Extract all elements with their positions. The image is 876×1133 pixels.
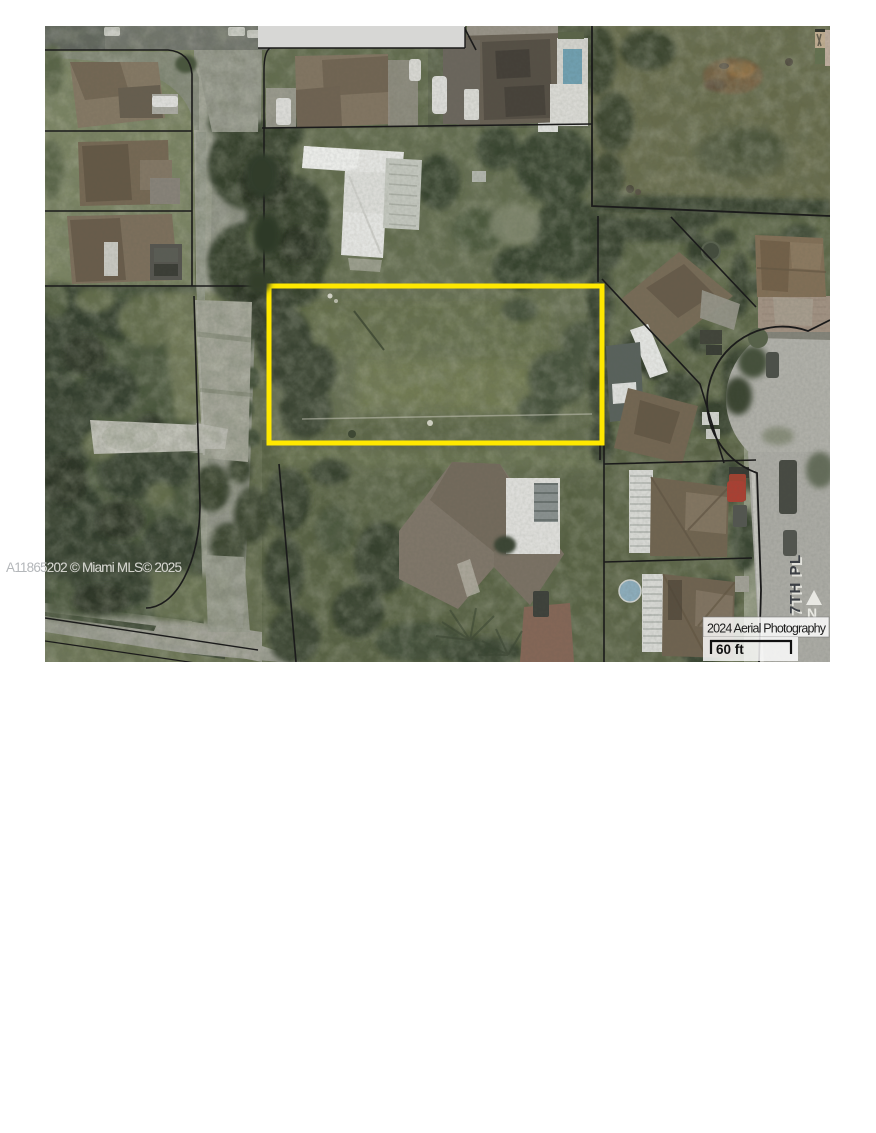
svg-text:2024 Aerial Photography: 2024 Aerial Photography	[707, 622, 827, 636]
svg-text:7TH PL: 7TH PL	[787, 553, 804, 614]
svg-text:60 ft: 60 ft	[716, 642, 744, 657]
